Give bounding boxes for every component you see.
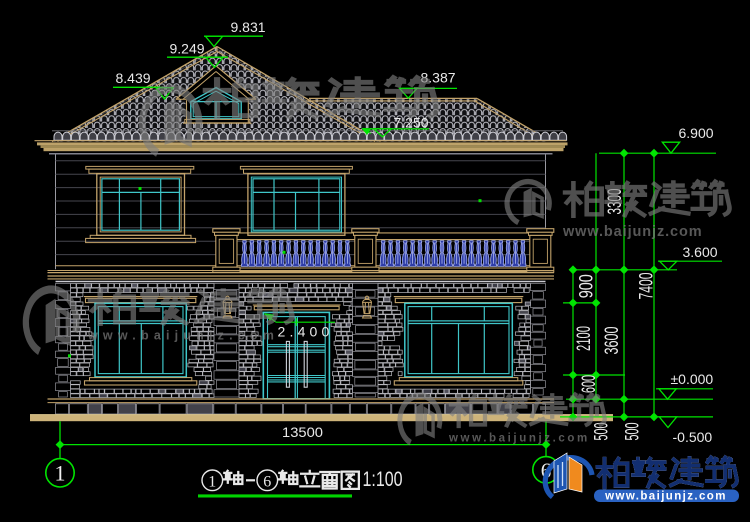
svg-text:±0.000: ±0.000 [671,371,714,387]
svg-text:2100: 2100 [574,326,595,351]
svg-text:1: 1 [55,461,66,486]
svg-text:1:100: 1:100 [363,468,403,491]
svg-text:1: 1 [208,474,216,491]
svg-text:www.baijunjz.com: www.baijunjz.com [448,433,590,445]
svg-text:9.249: 9.249 [170,40,205,56]
svg-text:900: 900 [577,274,598,298]
svg-text:3600: 3600 [602,327,623,355]
svg-text:13500: 13500 [282,424,323,440]
svg-text:600: 600 [579,375,600,393]
svg-text:9.831: 9.831 [231,19,266,35]
svg-text:7400: 7400 [637,273,658,300]
svg-text:-0.500: -0.500 [673,429,713,445]
svg-text:www.baijunjz.com: www.baijunjz.com [604,491,727,503]
svg-text:www.baijunjz.com: www.baijunjz.com [87,329,279,343]
svg-text:8.439: 8.439 [116,70,151,86]
svg-text:500: 500 [623,423,644,441]
svg-text:3.600: 3.600 [683,244,718,260]
svg-text:6: 6 [263,474,271,491]
svg-text:2.400: 2.400 [278,323,334,339]
svg-text:6.900: 6.900 [679,125,714,141]
svg-text:www.baijunjz.com: www.baijunjz.com [562,224,703,240]
